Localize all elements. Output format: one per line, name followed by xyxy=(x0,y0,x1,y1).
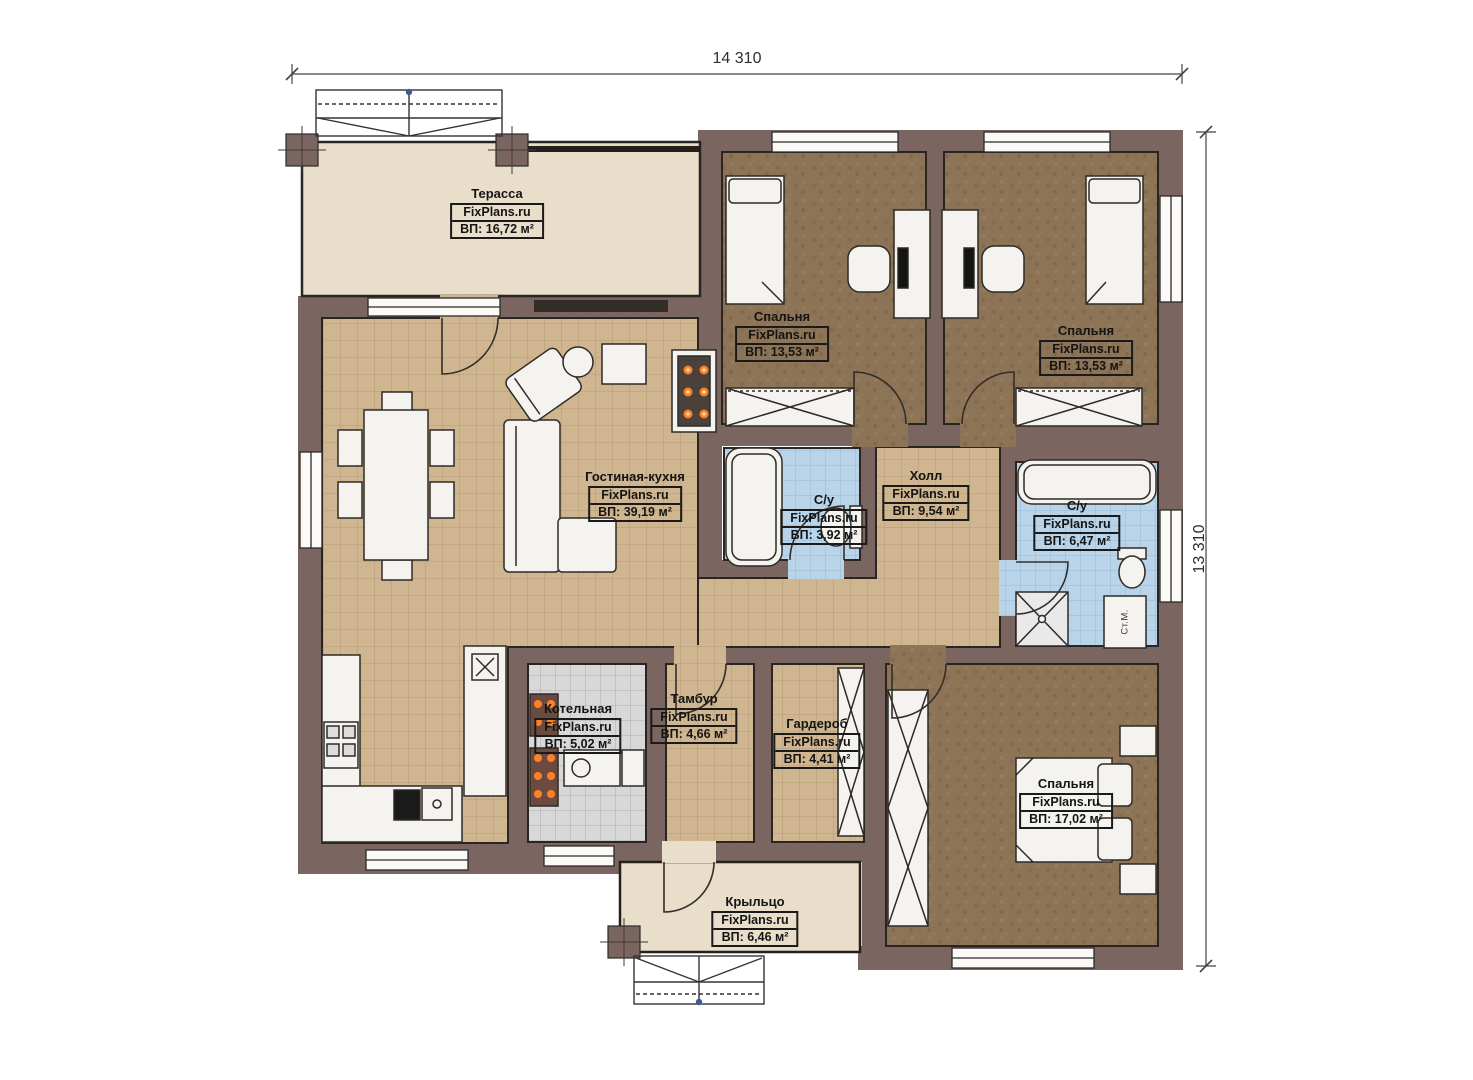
room-info-box: FixPlans.ru ВП: 13,53 м² xyxy=(1039,340,1133,376)
sofa xyxy=(504,420,560,572)
chair xyxy=(430,482,454,518)
sliding-opening-terrace xyxy=(534,300,668,312)
chair xyxy=(338,430,362,466)
kitchen-island xyxy=(464,646,506,796)
room-area: ВП: 4,66 м² xyxy=(652,727,735,742)
watermark-text: FixPlans.ru xyxy=(713,913,796,930)
coffee-table xyxy=(563,347,593,377)
window-terrace-divider xyxy=(368,298,500,316)
watermark-text: FixPlans.ru xyxy=(590,488,680,505)
room-name: Гардероб xyxy=(773,716,860,731)
window-living-left xyxy=(300,452,322,548)
room-label-bathroom-2: С/у FixPlans.ru ВП: 6,47 м² xyxy=(1033,498,1120,551)
side-table xyxy=(602,344,646,384)
room-label-wardrobe: Гардероб FixPlans.ru ВП: 4,41 м² xyxy=(773,716,860,769)
sofa-chaise xyxy=(558,518,616,572)
watermark-text: FixPlans.ru xyxy=(737,328,827,345)
window-bedroom-1-top xyxy=(772,132,898,152)
dishwasher xyxy=(394,790,420,820)
closet-bedroom-3 xyxy=(888,690,928,926)
window-bathroom-2-right xyxy=(1160,510,1182,602)
room-area: ВП: 3,92 м² xyxy=(782,528,865,543)
room-info-box: FixPlans.ru ВП: 13,53 м² xyxy=(735,326,829,362)
stairs-porch xyxy=(634,956,764,1005)
room-label-hall: Холл FixPlans.ru ВП: 9,54 м² xyxy=(882,468,969,521)
room-label-bathroom-1: С/у FixPlans.ru ВП: 3,92 м² xyxy=(780,492,867,545)
watermark-text: FixPlans.ru xyxy=(1041,342,1131,359)
watermark-text: FixPlans.ru xyxy=(884,487,967,504)
watermark-text: FixPlans.ru xyxy=(1021,795,1111,812)
watermark-text: FixPlans.ru xyxy=(782,511,865,528)
window-kitchen-bottom-1 xyxy=(366,850,468,870)
room-area: ВП: 5,02 м² xyxy=(536,737,619,752)
chair xyxy=(382,392,412,412)
room-info-box: FixPlans.ru ВП: 6,46 м² xyxy=(711,911,798,947)
watermark-text: FixPlans.ru xyxy=(452,205,542,222)
chair xyxy=(430,430,454,466)
room-label-bedroom-2: Спальня FixPlans.ru ВП: 13,53 м² xyxy=(1039,323,1133,376)
kitchen-sink xyxy=(422,788,452,820)
boiler-appliance xyxy=(564,750,644,786)
bed-single-2 xyxy=(1086,176,1143,304)
room-name: Спальня xyxy=(1019,776,1113,791)
bed-single-1 xyxy=(726,176,784,304)
room-label-bedroom-1: Спальня FixPlans.ru ВП: 13,53 м² xyxy=(735,309,829,362)
stairs-terrace xyxy=(316,89,502,136)
room-info-box: FixPlans.ru ВП: 4,66 м² xyxy=(650,708,737,744)
watermark-text: FixPlans.ru xyxy=(536,720,619,737)
watermark-text: FixPlans.ru xyxy=(652,710,735,727)
nightstand xyxy=(1120,726,1156,756)
dimension-width-label: 14 310 xyxy=(713,50,762,68)
lintel-line xyxy=(528,146,700,152)
room-info-box: FixPlans.ru ВП: 6,47 м² xyxy=(1033,515,1120,551)
window-bedroom-2-top xyxy=(984,132,1110,152)
room-area: ВП: 13,53 м² xyxy=(1041,359,1131,374)
bathtub-1 xyxy=(726,448,782,566)
room-name: Холл xyxy=(882,468,969,483)
room-name: Терасса xyxy=(450,186,544,201)
room-info-box: FixPlans.ru ВП: 4,41 м² xyxy=(773,733,860,769)
room-label-boiler-room: Котельная FixPlans.ru ВП: 5,02 м² xyxy=(534,701,621,754)
room-name: С/у xyxy=(780,492,867,507)
dining-table xyxy=(364,410,428,560)
room-name: Крыльцо xyxy=(711,894,798,909)
office-chair xyxy=(848,246,890,292)
room-label-porch: Крыльцо FixPlans.ru ВП: 6,46 м² xyxy=(711,894,798,947)
window-bedroom-2-right xyxy=(1160,196,1182,302)
room-area: ВП: 6,47 м² xyxy=(1035,534,1118,549)
watermark-text: FixPlans.ru xyxy=(775,735,858,752)
room-area: ВП: 16,72 м² xyxy=(452,222,542,237)
stove xyxy=(324,722,358,768)
room-info-box: FixPlans.ru ВП: 17,02 м² xyxy=(1019,793,1113,829)
room-area: ВП: 9,54 м² xyxy=(884,504,967,519)
nightstand xyxy=(1120,864,1156,894)
room-name: Спальня xyxy=(735,309,829,324)
room-info-box: FixPlans.ru ВП: 39,19 м² xyxy=(588,486,682,522)
floor-plan-page: 14 310 13 310 Терасса FixPlans.ru ВП: 16… xyxy=(0,0,1473,1080)
room-info-box: FixPlans.ru ВП: 5,02 м² xyxy=(534,718,621,754)
room-label-vestibule: Тамбур FixPlans.ru ВП: 4,66 м² xyxy=(650,691,737,744)
monitor xyxy=(964,248,974,288)
room-area: ВП: 13,53 м² xyxy=(737,345,827,360)
room-area: ВП: 17,02 м² xyxy=(1021,812,1111,827)
chair xyxy=(382,560,412,580)
room-name: Спальня xyxy=(1039,323,1133,338)
chair xyxy=(338,482,362,518)
monitor xyxy=(898,248,908,288)
shower xyxy=(1016,592,1068,646)
watermark-text: FixPlans.ru xyxy=(1035,517,1118,534)
room-name: Гостиная-кухня xyxy=(585,469,685,484)
window-kitchen-bottom-2 xyxy=(544,846,614,866)
washing-machine-label: Ст.М. xyxy=(1120,609,1131,634)
room-name: Тамбур xyxy=(650,691,737,706)
office-chair xyxy=(982,246,1024,292)
room-area: ВП: 6,46 м² xyxy=(713,930,796,945)
fireplace xyxy=(672,350,716,432)
room-info-box: FixPlans.ru ВП: 3,92 м² xyxy=(780,509,867,545)
wardrobe-bedroom-2 xyxy=(1016,388,1142,426)
room-area: ВП: 39,19 м² xyxy=(590,505,680,520)
room-name: С/у xyxy=(1033,498,1120,513)
room-label-bedroom-3: Спальня FixPlans.ru ВП: 17,02 м² xyxy=(1019,776,1113,829)
room-label-living-kitchen: Гостиная-кухня FixPlans.ru ВП: 39,19 м² xyxy=(585,469,685,522)
room-info-box: FixPlans.ru ВП: 9,54 м² xyxy=(882,485,969,521)
window-bedroom-3-bottom xyxy=(952,948,1094,968)
room-label-terrace: Терасса FixPlans.ru ВП: 16,72 м² xyxy=(450,186,544,239)
dimension-height-label: 13 310 xyxy=(1191,525,1209,574)
room-info-box: FixPlans.ru ВП: 16,72 м² xyxy=(450,203,544,239)
toilet-2 xyxy=(1118,548,1146,588)
room-area: ВП: 4,41 м² xyxy=(775,752,858,767)
wardrobe-bedroom-1 xyxy=(726,388,854,426)
room-name: Котельная xyxy=(534,701,621,716)
